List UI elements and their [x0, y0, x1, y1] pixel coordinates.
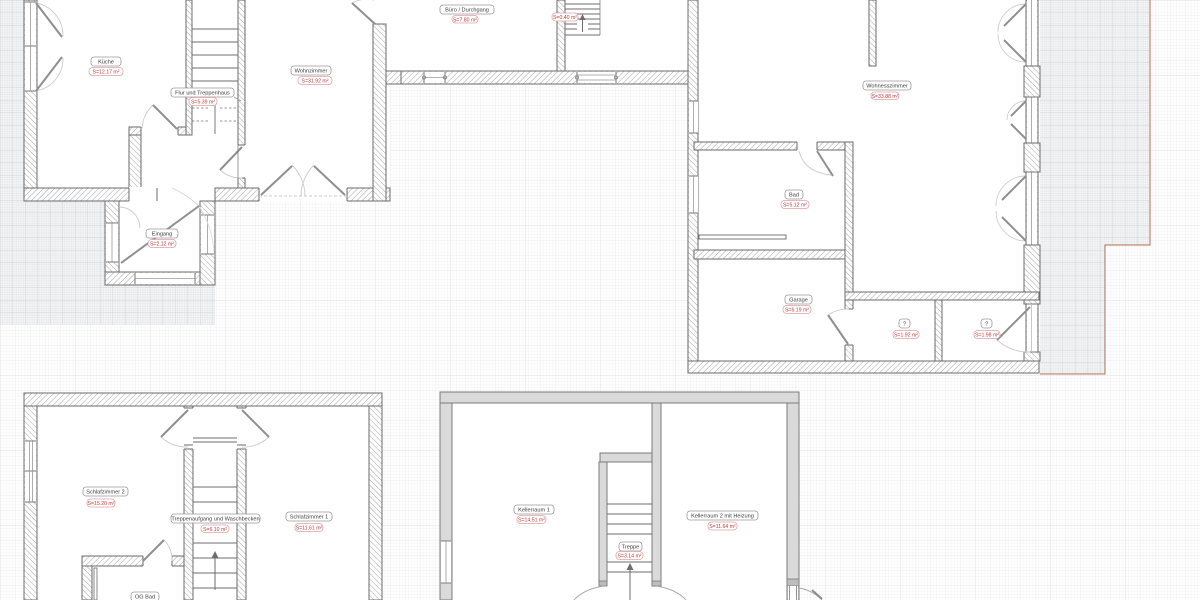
svg-text:S=14.51 m²: S=14.51 m² — [518, 518, 545, 524]
svg-text:S=5.12 m²: S=5.12 m² — [783, 203, 807, 209]
svg-text:S=2.12 m²: S=2.12 m² — [150, 242, 174, 248]
svg-text:Treppenaufgang und Waschbecken: Treppenaufgang und Waschbecken — [171, 517, 259, 523]
svg-text:S=3.14 m²: S=3.14 m² — [617, 554, 641, 560]
svg-text:Schlafzimmer 2: Schlafzimmer 2 — [86, 490, 125, 496]
svg-text:?: ? — [903, 322, 906, 328]
svg-text:Kellerraum 1: Kellerraum 1 — [518, 508, 550, 514]
svg-text:Büro / Durchgang: Büro / Durchgang — [445, 8, 489, 14]
svg-text:Schlafzimmer 1: Schlafzimmer 1 — [290, 515, 329, 521]
svg-text:Wohnesszimmer: Wohnesszimmer — [866, 84, 908, 90]
svg-text:S=0.40 m²: S=0.40 m² — [553, 15, 577, 21]
svg-text:S=1.98 m²: S=1.98 m² — [975, 333, 999, 339]
svg-text:S=31.92 m²: S=31.92 m² — [302, 79, 329, 85]
svg-text:OG Bad: OG Bad — [135, 595, 155, 600]
svg-text:Küche: Küche — [98, 60, 114, 66]
svg-text:?: ? — [985, 322, 988, 328]
svg-text:Wohnzimmer: Wohnzimmer — [295, 69, 328, 75]
svg-text:S=33.88 m²: S=33.88 m² — [872, 94, 899, 100]
svg-text:S=6.10 m²: S=6.10 m² — [203, 527, 227, 533]
svg-text:Garage: Garage — [789, 298, 808, 304]
svg-text:S=6.19 m²: S=6.19 m² — [785, 308, 809, 314]
svg-text:S=5.39 m²: S=5.39 m² — [191, 100, 215, 106]
svg-text:Flur und Treppenhaus: Flur und Treppenhaus — [175, 91, 230, 97]
svg-text:Treppe: Treppe — [622, 545, 640, 551]
svg-text:S=7.80 m²: S=7.80 m² — [453, 17, 477, 23]
svg-text:Eingang: Eingang — [152, 232, 173, 238]
svg-text:S=11.61 m²: S=11.61 m² — [296, 526, 323, 532]
svg-text:Kellerraum 2 mit Heizung: Kellerraum 2 mit Heizung — [691, 514, 754, 520]
svg-text:Bad: Bad — [789, 193, 799, 199]
svg-text:S=15.20 m²: S=15.20 m² — [88, 501, 115, 507]
svg-text:S=12.17 m²: S=12.17 m² — [93, 70, 120, 76]
svg-text:S=11.64 m²: S=11.64 m² — [709, 524, 736, 530]
svg-text:S=1.92 m²: S=1.92 m² — [894, 333, 918, 339]
